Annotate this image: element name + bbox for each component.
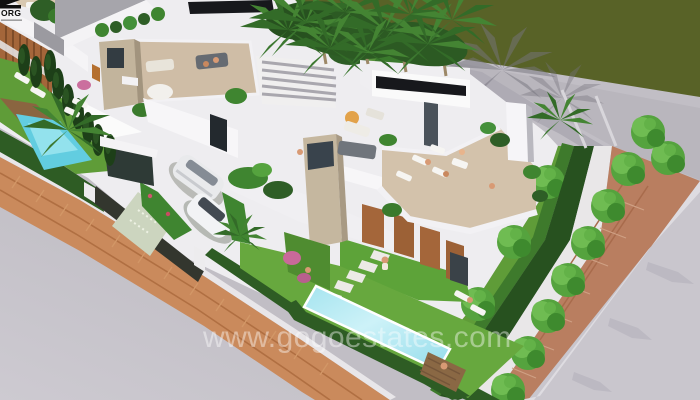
svg-text:www.gogoestates.com: www.gogoestates.com [202,321,512,354]
svg-text:ORG: ORG [1,8,21,18]
